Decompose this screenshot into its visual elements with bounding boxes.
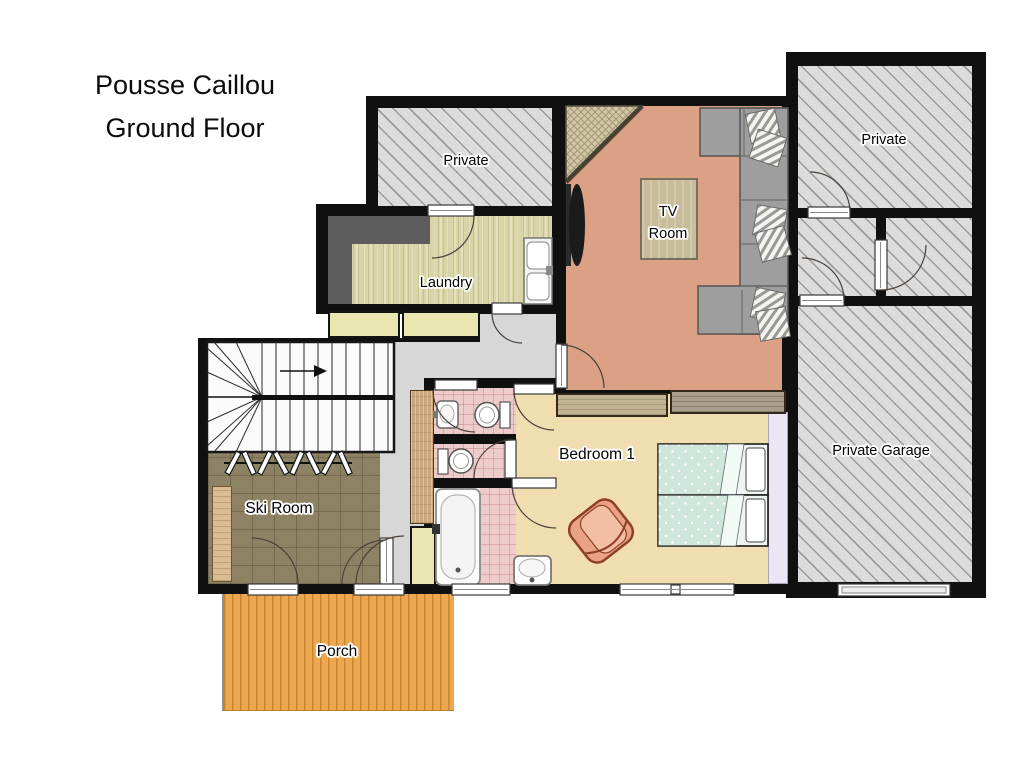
label-private-topright: Private bbox=[861, 132, 906, 148]
label-tv-room-line2: Room bbox=[649, 226, 688, 242]
tv-icon bbox=[566, 184, 585, 266]
floor-plan: Pousse Caillou Ground Floor bbox=[0, 0, 1024, 768]
plan-title-line2: Ground Floor bbox=[40, 107, 330, 150]
label-private-garage: Private Garage bbox=[832, 443, 930, 459]
sofa bbox=[698, 108, 791, 341]
staircase bbox=[207, 342, 394, 452]
armchair bbox=[564, 495, 637, 568]
plan-title: Pousse Caillou Ground Floor bbox=[40, 64, 330, 150]
wc1-sink bbox=[433, 401, 458, 428]
bathtub bbox=[432, 489, 480, 585]
fireplace bbox=[566, 106, 642, 182]
label-laundry: Laundry bbox=[420, 275, 472, 291]
ski-rack bbox=[224, 451, 352, 475]
wc2-toilet bbox=[438, 449, 473, 474]
twin-beds bbox=[658, 444, 768, 546]
label-porch: Porch bbox=[317, 643, 358, 661]
label-tv-room-line1: TV bbox=[659, 204, 678, 220]
plan-title-line1: Pousse Caillou bbox=[40, 64, 330, 107]
label-private-topleft: Private bbox=[443, 153, 488, 169]
wc1-toilet bbox=[475, 402, 510, 428]
laundry-sink bbox=[524, 238, 553, 304]
label-ski-room: Ski Room bbox=[245, 500, 312, 518]
bathroom-sink bbox=[514, 556, 551, 585]
label-bedroom-1: Bedroom 1 bbox=[559, 446, 635, 464]
